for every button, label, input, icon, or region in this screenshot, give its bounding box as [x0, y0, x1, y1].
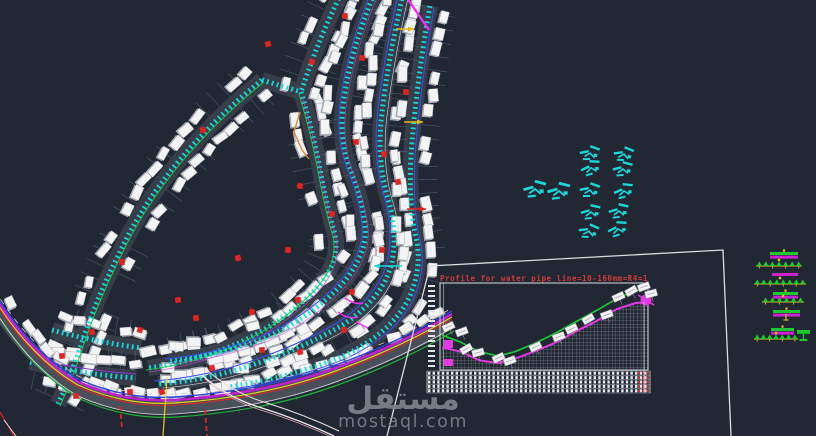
watermark: مستقل mostaql.com — [338, 381, 468, 432]
cad-canvas: Profile for water pipe line=10-160mm=R4=… — [0, 0, 816, 436]
pipe-fitting-symbols — [523, 144, 635, 241]
watermark-domain: mostaql.com — [338, 412, 468, 432]
legend-symbols — [754, 249, 810, 341]
cad-viewport[interactable]: Profile for water pipe line=10-160mm=R4=… — [0, 0, 816, 436]
site-plan — [0, 0, 455, 436]
profile-chart-title: Profile for water pipe line=10-160mm=R4=… — [440, 274, 648, 283]
